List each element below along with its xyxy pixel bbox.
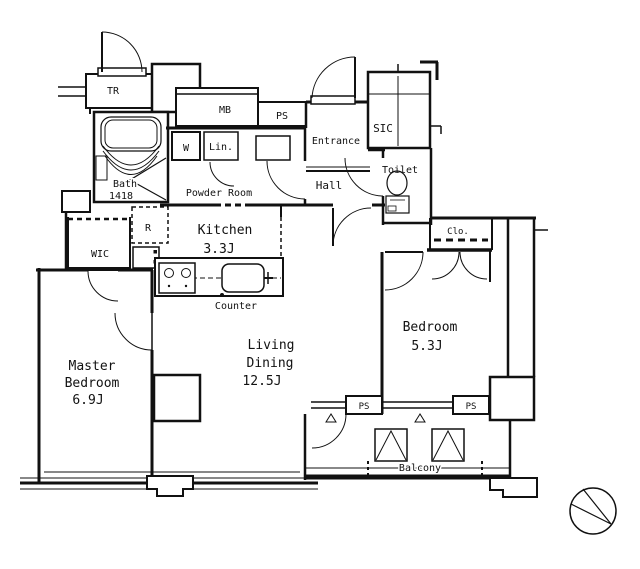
label-living-dining-1: Living <box>248 338 295 353</box>
label-bedroom: Bedroom <box>403 320 458 335</box>
label-balcony: Balcony <box>399 463 441 474</box>
label-master-bedroom-2: Bedroom <box>65 376 120 391</box>
label-linen: Lin. <box>209 142 233 153</box>
label-toilet: Toilet <box>382 165 418 176</box>
label-refrigerator: R <box>145 223 152 234</box>
label-bath-size: 1418 <box>109 191 133 202</box>
label-hall: Hall <box>316 179 343 192</box>
label-wic: WIC <box>91 249 109 260</box>
window-marker-triangle <box>415 414 425 422</box>
balcony-hatch <box>375 429 464 461</box>
label-kitchen-size: 3.3J <box>203 242 234 257</box>
label-closet: Clo. <box>447 227 469 237</box>
label-living-dining-2: Dining <box>247 356 294 371</box>
sink <box>222 264 264 292</box>
label-pipe-space-top: PS <box>276 111 288 122</box>
window-marker-triangle <box>326 414 336 422</box>
vanity-sink <box>256 136 290 160</box>
label-pipe-space-balcony-left: PS <box>359 402 370 412</box>
label-meter-box: MB <box>219 105 231 116</box>
toilet-fixture <box>386 171 409 213</box>
label-bath: Bath <box>113 179 137 190</box>
kitchen-counter <box>155 258 283 297</box>
label-master-bedroom-1: Master <box>69 359 116 374</box>
label-living-dining-size: 12.5J <box>242 374 281 389</box>
north-arrow-icon <box>570 488 616 534</box>
label-counter: Counter <box>215 301 257 312</box>
label-kitchen: Kitchen <box>198 223 253 238</box>
floor-plan: TR MB PS Entrance SIC Toilet W Lin. Bath… <box>0 0 640 569</box>
label-bedroom-size: 5.3J <box>411 339 442 354</box>
floor-plan-svg: TR MB PS Entrance SIC Toilet W Lin. Bath… <box>0 0 640 569</box>
stove <box>159 263 195 293</box>
label-entrance: Entrance <box>312 136 360 147</box>
label-master-bedroom-size: 6.9J <box>72 393 103 408</box>
label-pipe-space-balcony-right: PS <box>466 402 477 412</box>
label-powder-room: Powder Room <box>186 188 252 199</box>
label-sic: SIC <box>373 122 393 135</box>
label-trunk-room: TR <box>107 86 120 97</box>
label-washer: W <box>183 143 190 154</box>
